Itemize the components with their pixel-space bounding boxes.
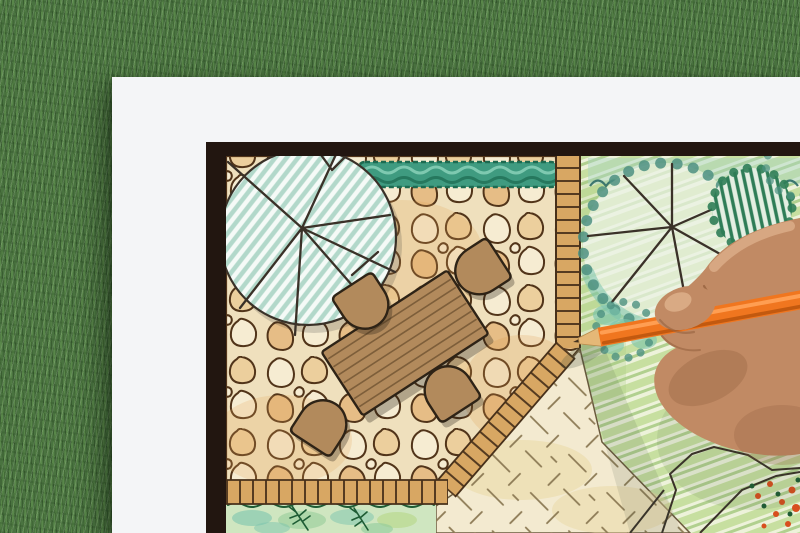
garden-plan-drawing — [192, 140, 800, 533]
photo-scene — [0, 0, 800, 533]
planting-bed — [226, 503, 436, 533]
hedge-strip — [358, 162, 558, 187]
